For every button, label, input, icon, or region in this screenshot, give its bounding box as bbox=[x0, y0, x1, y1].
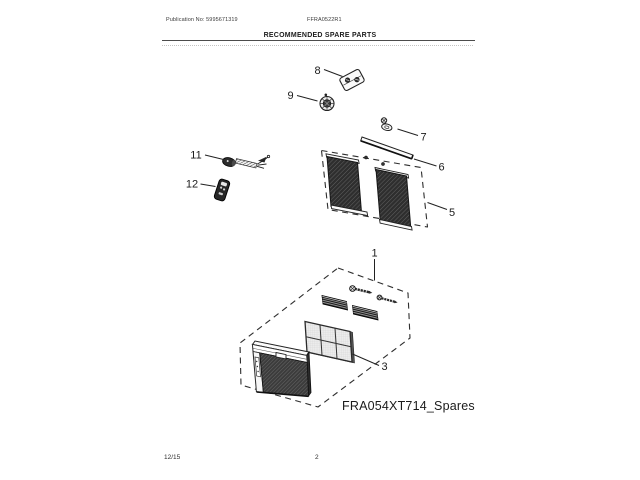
callout-12: 12 bbox=[186, 179, 198, 191]
callout-line-7 bbox=[398, 129, 419, 136]
callout-5: 5 bbox=[449, 207, 455, 219]
callout-7: 7 bbox=[420, 132, 426, 144]
footer-date: 12/15 bbox=[164, 454, 180, 461]
part-air-filter bbox=[305, 322, 355, 363]
callout-3: 3 bbox=[381, 361, 387, 373]
callout-11: 11 bbox=[190, 150, 201, 162]
part-screw-2 bbox=[377, 295, 398, 303]
part-drain-cap bbox=[320, 94, 334, 111]
callout-line-9 bbox=[297, 96, 318, 102]
part-top-seal-rail bbox=[361, 137, 413, 159]
callout-line-8 bbox=[324, 70, 343, 77]
callout-8: 8 bbox=[314, 65, 320, 77]
callout-1: 1 bbox=[371, 248, 377, 260]
callout-9: 9 bbox=[287, 90, 293, 102]
callout-line-12 bbox=[201, 184, 216, 187]
part-window-curtain-kit bbox=[322, 151, 428, 231]
callout-line-6 bbox=[414, 159, 437, 166]
part-ac-unit-front bbox=[253, 341, 312, 396]
callout-6: 6 bbox=[438, 162, 444, 174]
callout-line-3 bbox=[353, 354, 380, 366]
part-louver-vent-1 bbox=[322, 296, 348, 311]
callout-line-11 bbox=[205, 155, 224, 160]
callout-line-5 bbox=[428, 203, 448, 210]
part-drain-clamp bbox=[339, 69, 365, 92]
part-remote-control bbox=[214, 178, 231, 201]
part-screw-washer bbox=[381, 118, 393, 132]
exploded-parts-diagram: 8 9 7 6 bbox=[0, 0, 640, 480]
part-power-cord bbox=[222, 155, 270, 168]
parts-diagram-page: { "header": { "publication": "Publicatio… bbox=[0, 0, 640, 480]
part-screw-1 bbox=[350, 286, 373, 294]
footer-page-number: 2 bbox=[315, 454, 319, 461]
part-louver-vent-2 bbox=[353, 306, 379, 321]
diagram-label: FRA054XT714_Spares bbox=[342, 399, 475, 413]
part-spares-kit-box bbox=[240, 268, 410, 407]
